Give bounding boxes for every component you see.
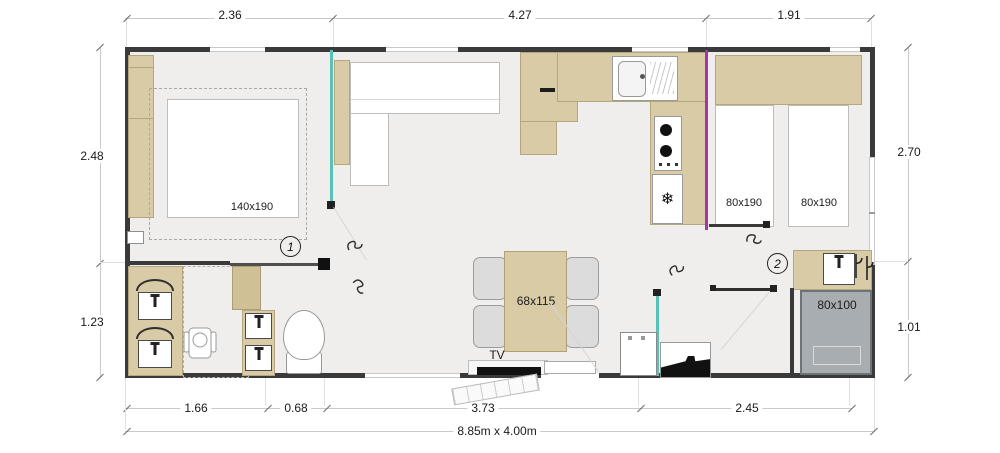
window-right-divider [869, 212, 875, 214]
dining-chair [565, 257, 599, 300]
partition-purple-bedroom2 [705, 50, 708, 230]
dim-label-bottom-3: 3.73 [467, 401, 498, 415]
dining-chair [565, 305, 599, 348]
washing-machine [620, 332, 657, 376]
extension-line [849, 378, 850, 406]
extension-line [706, 20, 707, 47]
fridge: ❄ [652, 174, 683, 224]
floorplan-canvas: 2.36 4.27 1.91 2.48 1.23 2.70 1.01 1.66 … [0, 0, 1000, 453]
shower-seat-icon [181, 322, 221, 364]
wardrobe-shelf-line [128, 67, 154, 68]
dining-chair [473, 305, 507, 348]
washbasin-unit [138, 340, 172, 368]
sofa-side-shelf [334, 60, 350, 165]
dim-label-bottom-4: 2.45 [731, 401, 762, 415]
washing-machine-knob [641, 336, 645, 340]
shower-label: 80x100 [817, 298, 856, 312]
door-post-dot [653, 289, 661, 296]
dim-label-left-1: 2.48 [76, 149, 107, 163]
master-bed-label: 140x190 [231, 201, 273, 213]
extension-line [874, 378, 875, 430]
extension-line [875, 261, 908, 262]
dim-label-overall: 8.85m x 4.00m [453, 424, 540, 438]
toilet-bowl [283, 310, 325, 360]
hob-burner [660, 124, 672, 136]
dim-label-top-1: 2.36 [214, 8, 245, 22]
door-post-dot [763, 221, 770, 228]
entrance-door-leaf [544, 361, 596, 374]
dim-label-right-2: 1.01 [893, 320, 924, 334]
headboard-shelf [715, 55, 862, 105]
vanity-basin [245, 345, 272, 371]
bathroom1-wall [125, 261, 230, 265]
bedroom2-door-track [709, 224, 767, 227]
dim-label-right-1: 2.70 [893, 145, 924, 159]
window-top-bedroom1 [210, 47, 265, 52]
sofa-main [350, 62, 500, 114]
bedside-unit [127, 231, 144, 244]
hob-burner [660, 145, 672, 157]
dim-label-bottom-1: 1.66 [180, 401, 211, 415]
extension-line [100, 262, 125, 263]
twin-bed-left-label: 80x190 [726, 197, 762, 209]
extension-line [333, 20, 334, 47]
extension-line [125, 378, 126, 430]
sliding-door-arrow [318, 258, 330, 270]
extension-line [265, 378, 266, 406]
bathroom2-wall [790, 288, 794, 378]
door-handle-squiggle [346, 239, 364, 253]
window-top-lounge [386, 47, 458, 52]
washing-machine-knob [628, 336, 632, 340]
twin-bed-right-label: 80x190 [801, 197, 837, 209]
dim-label-top-2: 4.27 [504, 8, 535, 22]
bathroom1-cabinet [232, 266, 261, 310]
extension-line [638, 378, 639, 406]
extension-line [871, 20, 872, 47]
extension-line [126, 20, 127, 47]
window-top-bedroom2 [830, 47, 860, 52]
dining-chair [473, 257, 507, 300]
washbasin-unit [138, 292, 172, 320]
extension-line [324, 378, 325, 406]
kitchen-sink-bowl [618, 61, 646, 97]
sofa-seat-line [351, 99, 499, 100]
dim-label-bottom-2: 0.68 [280, 401, 311, 415]
sink-drainer [650, 62, 674, 94]
sofa-chaise [350, 113, 389, 186]
window-bottom-lounge [365, 373, 460, 378]
partition-teal-bedroom1 [330, 50, 333, 203]
fridge-snowflake-icon: ❄ [661, 189, 674, 209]
kitchen-handle [540, 88, 555, 92]
kitchen-tall-unit-lower [520, 121, 557, 155]
shower-tray [813, 346, 861, 365]
vanity-basin [245, 313, 272, 339]
door-post-dot [710, 285, 716, 291]
door-post-dot [770, 285, 777, 292]
door-number-1: 1 [280, 236, 301, 257]
kitchen-faucet [640, 74, 645, 79]
hob-knobs [659, 163, 662, 166]
dim-label-left-2: 1.23 [76, 315, 107, 329]
dim-label-top-3: 1.91 [773, 8, 804, 22]
window-right-bedroom2 [869, 157, 875, 265]
towel-hooks-icon [850, 251, 874, 285]
bathroom2-sliding-door [714, 288, 774, 291]
door-number-2: 2 [767, 253, 788, 274]
